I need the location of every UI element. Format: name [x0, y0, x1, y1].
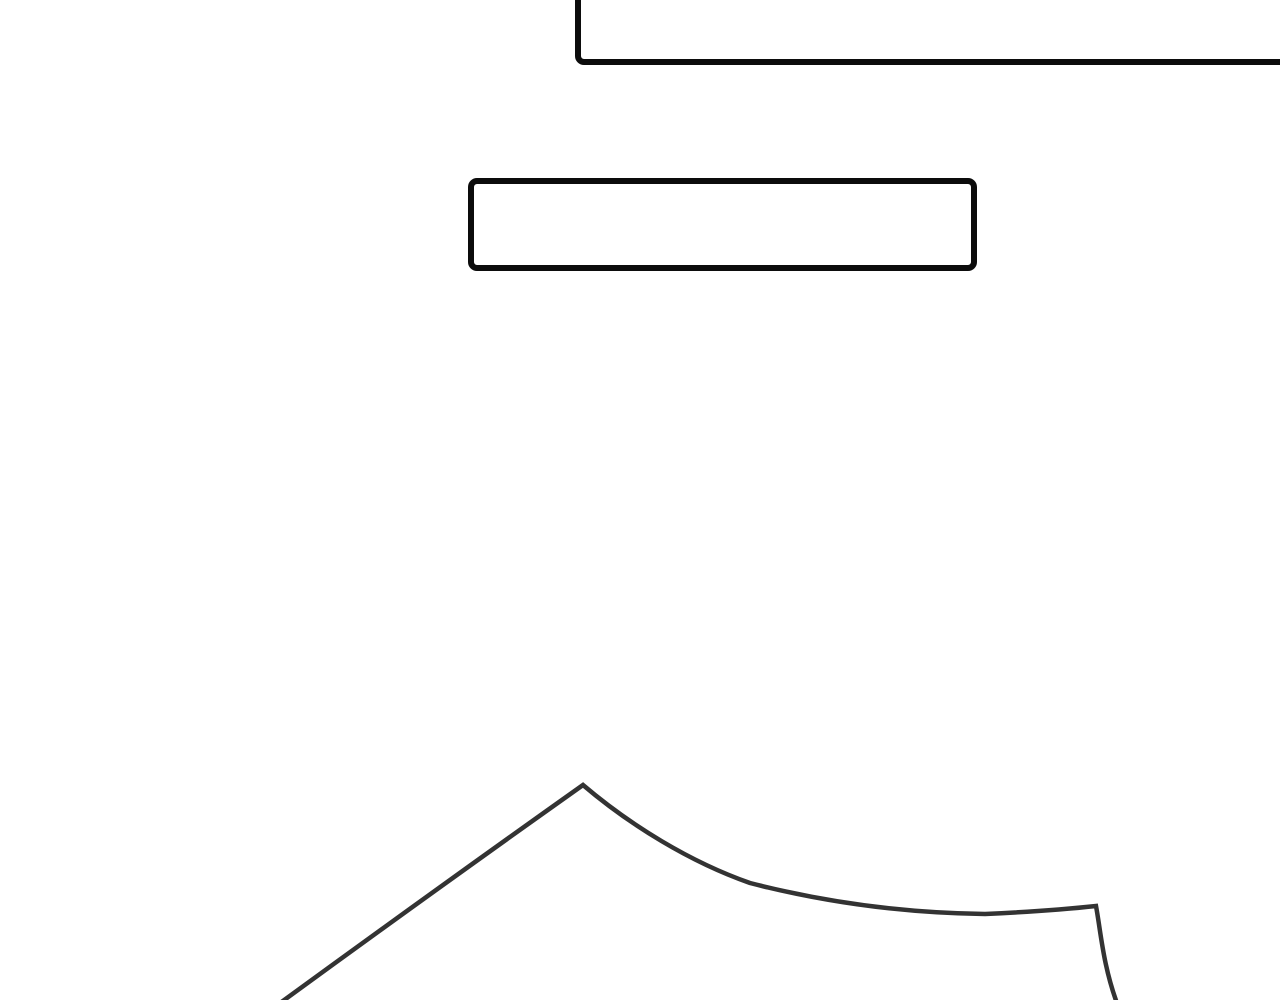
peak-outline-path: [276, 785, 1118, 1000]
line-art-drawing: [0, 0, 1280, 1000]
speech-box-top: [575, 0, 1280, 65]
speech-box-middle-text: [474, 184, 971, 265]
comic-page: [0, 0, 1280, 1000]
speech-box-top-text: [581, 0, 1280, 59]
speech-box-middle: [468, 178, 977, 271]
